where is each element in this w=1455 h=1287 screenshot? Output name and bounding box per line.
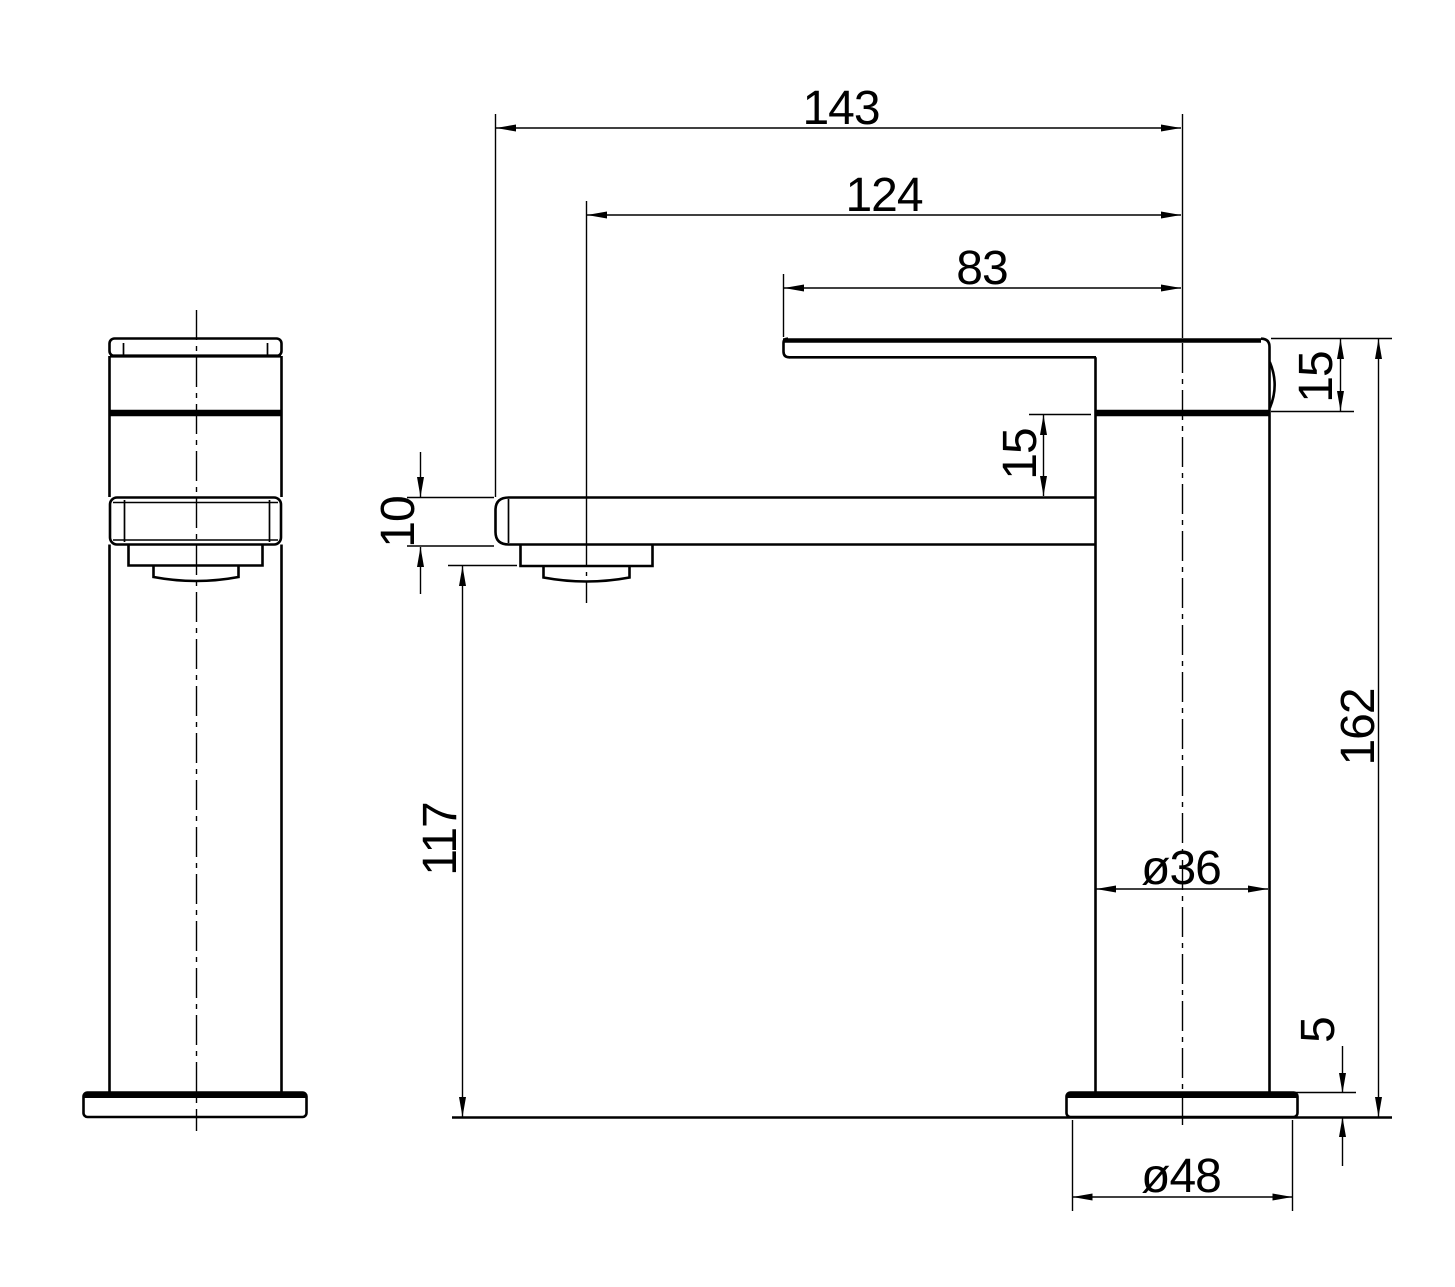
column-side-edges bbox=[110, 545, 282, 1093]
dim-label-dia36: ø36 bbox=[1141, 842, 1221, 895]
body-side-edges bbox=[110, 356, 282, 497]
deck-plate-outline bbox=[110, 498, 281, 545]
dimension-15-gap: 15 bbox=[994, 415, 1091, 497]
dim-label-83: 83 bbox=[956, 242, 1007, 295]
dimension-117: 117 bbox=[414, 566, 517, 1118]
dimension-5: 5 bbox=[1292, 1017, 1356, 1166]
front-view bbox=[452, 114, 1392, 1131]
faucet-dimension-drawing: 143 124 83 15 15 10 117 162 bbox=[0, 0, 1455, 1287]
dim-label-117: 117 bbox=[414, 802, 467, 876]
side-view bbox=[84, 310, 307, 1131]
deck-plate-inner-lines bbox=[113, 503, 278, 541]
dimension-143: 143 bbox=[496, 82, 1182, 497]
dim-label-162: 162 bbox=[1332, 688, 1385, 765]
dimension-10: 10 bbox=[372, 452, 494, 594]
handle-cap-outline bbox=[110, 339, 282, 357]
dimension-dia48: ø48 bbox=[1073, 1120, 1293, 1211]
dimension-dia36: ø36 bbox=[1096, 842, 1268, 895]
aerator-step1 bbox=[129, 545, 263, 566]
dim-label-143: 143 bbox=[802, 82, 879, 135]
dim-label-5: 5 bbox=[1292, 1017, 1345, 1043]
dimension-124: 124 bbox=[587, 169, 1181, 222]
dim-label-15-gap: 15 bbox=[994, 428, 1047, 479]
dimension-15-spout: 15 bbox=[1271, 339, 1392, 412]
dim-label-dia48: ø48 bbox=[1141, 1150, 1221, 1203]
dim-label-10: 10 bbox=[372, 496, 425, 547]
deck-plate-front-outline bbox=[496, 498, 1096, 545]
handle-cap-corner-ticks bbox=[124, 343, 268, 355]
dim-label-124: 124 bbox=[845, 169, 922, 222]
technical-drawing-sheet: 143 124 83 15 15 10 117 162 bbox=[0, 0, 1455, 1287]
spout-right-corner bbox=[1261, 339, 1270, 347]
dim-label-15-spout: 15 bbox=[1290, 351, 1343, 402]
dimension-162: 162 bbox=[1332, 339, 1385, 1117]
dimension-83: 83 bbox=[784, 242, 1182, 337]
dim-5-arrows bbox=[1339, 1073, 1346, 1137]
